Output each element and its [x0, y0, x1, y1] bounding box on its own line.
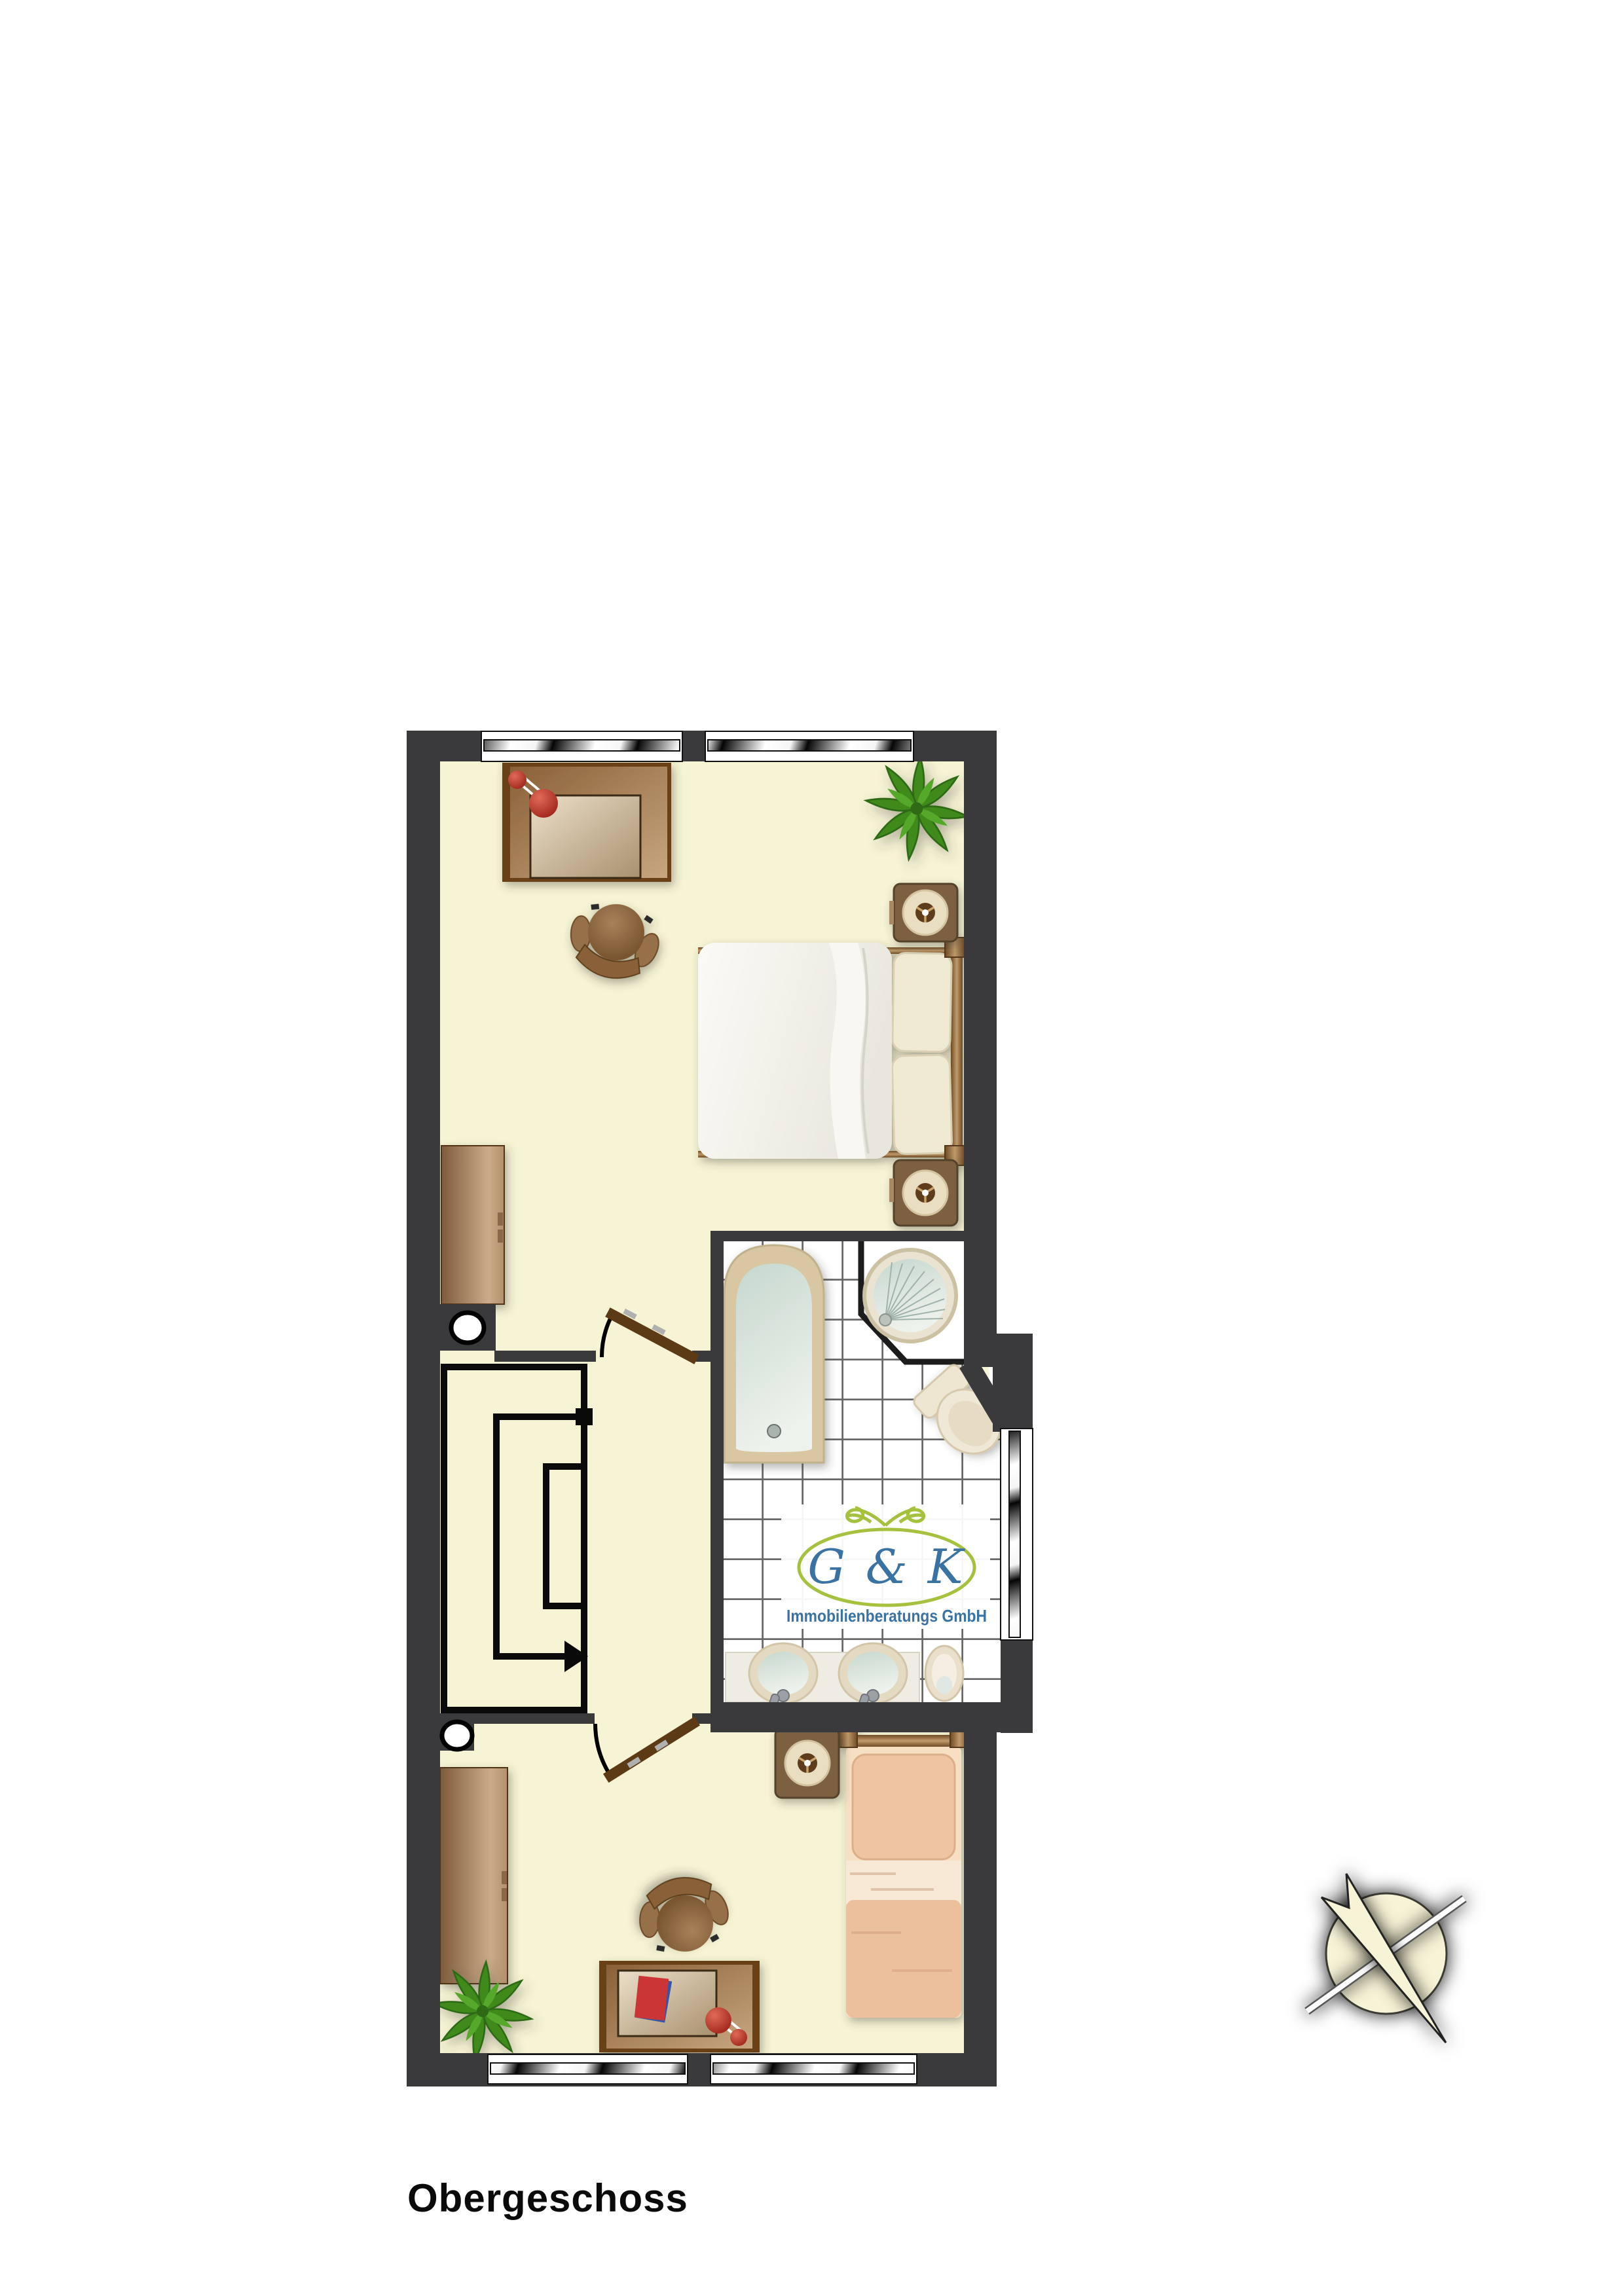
window-top-right	[705, 731, 913, 761]
watermark-logo: G & K Immobilienberatungs GmbH	[781, 1504, 990, 1629]
bathtub	[724, 1245, 824, 1463]
wall-hall-bottom-a	[407, 1713, 595, 1724]
page-title: Obergeschoss	[407, 2176, 688, 2220]
floor-plan: G & K Immobilienberatungs GmbH	[407, 731, 1038, 2086]
window-bottom-right	[710, 2054, 917, 2084]
shower	[864, 1250, 956, 1341]
nightstand-top	[889, 884, 957, 941]
wardrobe-top-room	[441, 1146, 504, 1304]
column-marker-lower	[442, 1722, 472, 1749]
floor-plan-page: { "title": "Obergeschoss", "logo": { "mo…	[0, 0, 1624, 2296]
double-bed	[698, 938, 965, 1165]
logo-subtitle: Immobilienberatungs GmbH	[786, 1606, 987, 1626]
window-bathroom-bay	[1001, 1429, 1033, 1640]
nightstand-bottom	[889, 1160, 957, 1226]
floor-plan-canvas: G & K Immobilienberatungs GmbH	[0, 0, 1624, 2296]
wall-bathroom-left	[710, 1231, 724, 1702]
wall-bathroom-top	[710, 1231, 964, 1241]
stair-walkline-start	[579, 1412, 589, 1422]
wall-right-lower	[964, 1732, 997, 2086]
wall-right-upper	[964, 731, 997, 1367]
window-bottom-left	[488, 2054, 688, 2084]
column-marker-upper	[451, 1313, 484, 1343]
window-top-left	[481, 731, 682, 761]
vanity-counter	[726, 1643, 919, 1709]
compass-icon	[1307, 1874, 1464, 2043]
wardrobe-bottom-room	[440, 1768, 507, 1984]
nightstand-bottom-room	[775, 1728, 839, 1798]
single-bed	[839, 1729, 969, 2018]
bidet	[925, 1646, 963, 1701]
wall-bathroom-bottom	[710, 1702, 1033, 1732]
wall-hall-top-a	[494, 1351, 596, 1362]
logo-monogram: G & K	[807, 1539, 965, 1594]
wall-left	[407, 731, 440, 2086]
